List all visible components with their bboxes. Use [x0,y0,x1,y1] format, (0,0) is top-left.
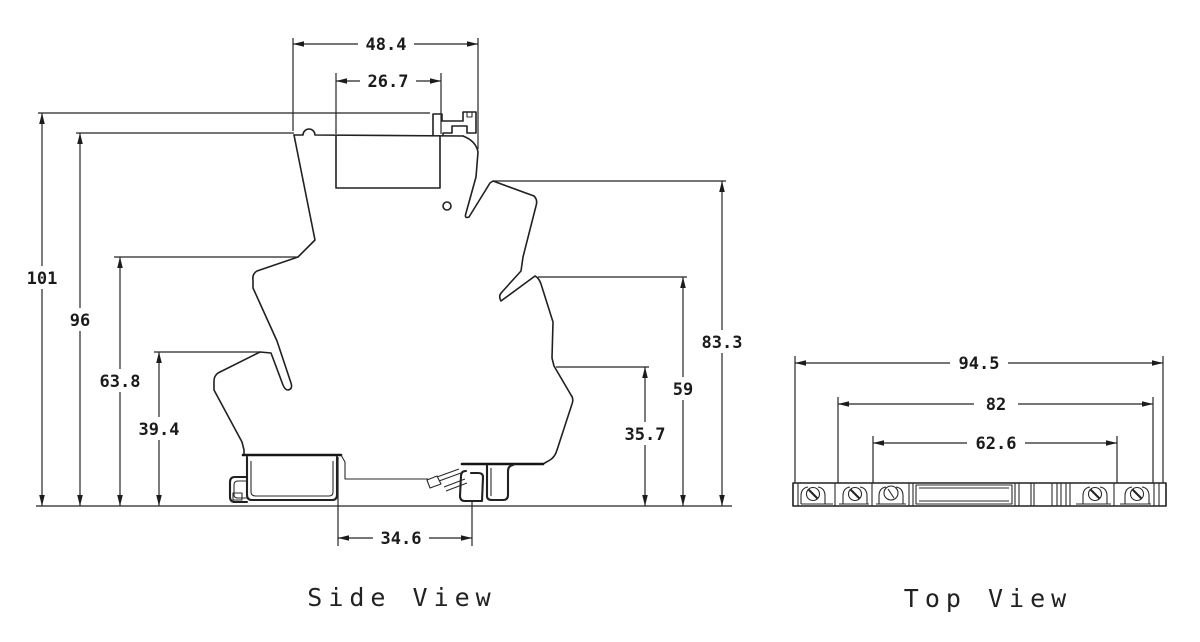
dim-label-lower-height: 39.4 [139,420,180,440]
screw-terminal-5 [1120,487,1151,504]
dim-label-right-mid-height: 59 [673,380,693,400]
terminal-box-hook-inner [234,481,247,498]
dim-right-height: 83.3 [493,181,749,506]
top-view-title: Top View [904,584,1072,613]
dim-label-right-lower-height: 35.7 [625,425,666,445]
dim-label-right-height: 83.3 [702,333,743,353]
dim-right-lower-height: 35.7 [556,367,672,506]
side-view-dimensions: 48.4 26.7 101 96 [16,33,749,549]
screw-slot [1091,490,1099,498]
foot-spring-band-1 [437,469,461,481]
screw-terminal-2 [839,487,869,504]
side-view-body [214,112,573,502]
screw-slot [809,490,817,498]
screw-terminal-4 [1076,487,1111,504]
foot-pawl [427,476,441,488]
bottom-channel [341,455,428,479]
center-window [916,485,1012,504]
dim-mid-height: 63.8 [93,257,298,506]
dim-label-overall-width: 94.5 [959,354,1000,374]
dim-top-inner-width: 26.7 [336,70,441,134]
dim-label-bottom-width: 34.6 [381,529,422,549]
body-top-edge [294,129,463,136]
top-view-body [793,483,1166,506]
dim-label-upper-height: 96 [70,311,90,331]
dim-label-top-inner-width: 26.7 [368,72,409,92]
dim-bottom-width: 34.6 [338,457,472,549]
foot-hook [460,471,483,501]
body-left-edge [214,135,315,455]
dim-lower-height: 39.4 [132,352,261,506]
screw-slot [1133,490,1141,498]
screw-terminal-3 [876,486,906,504]
terminal-box-outer [247,457,337,500]
dim-label-mid-height: 63.8 [100,372,141,392]
body-right-edge [463,136,573,464]
dim-inner-width: 62.6 [873,432,1117,483]
screw-slot [888,489,894,498]
terminal-box-inner [251,461,333,496]
din-rail-foot [427,465,513,501]
top-view-dimensions: 94.5 82 62.6 [795,352,1163,483]
strip-dividers [835,483,1159,506]
dim-right-mid-height: 59 [538,277,703,506]
dim-label-inner-width: 62.6 [976,434,1017,454]
dim-upper-height: 96 [60,133,294,506]
drawing-svg: 48.4 26.7 101 96 [0,0,1200,642]
screw-slot [851,490,859,498]
dim-label-overall-height: 101 [27,269,58,289]
top-latch-clip [433,112,476,135]
dim-label-mid-width: 82 [986,395,1006,415]
relay-block-rect [336,136,440,188]
side-view-title: Side View [307,583,496,612]
foot-spring-band-2 [444,479,467,491]
dim-overall-width: 94.5 [795,352,1163,483]
technical-drawing-page: 48.4 26.7 101 96 [0,0,1200,642]
test-hole [443,202,451,210]
dim-label-top-width: 48.4 [366,35,407,55]
screw-terminal-1 [801,487,833,504]
